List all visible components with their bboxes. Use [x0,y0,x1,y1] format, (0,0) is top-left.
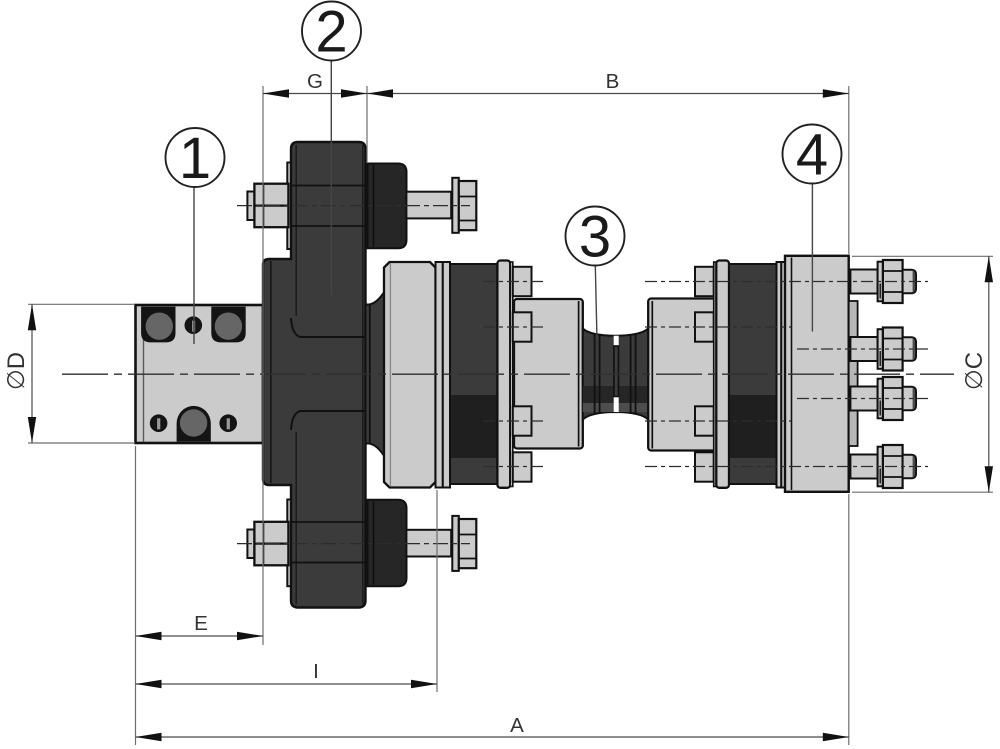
svg-text:I: I [313,660,319,683]
svg-text:∅C: ∅C [961,352,988,390]
svg-text:A: A [510,714,524,737]
svg-text:∅D: ∅D [3,352,30,390]
svg-text:4: 4 [796,123,828,188]
svg-text:1: 1 [179,126,211,191]
svg-text:E: E [194,612,208,635]
svg-text:2: 2 [315,0,347,65]
svg-text:3: 3 [579,205,611,270]
svg-text:G: G [307,70,323,93]
svg-text:B: B [606,70,620,93]
